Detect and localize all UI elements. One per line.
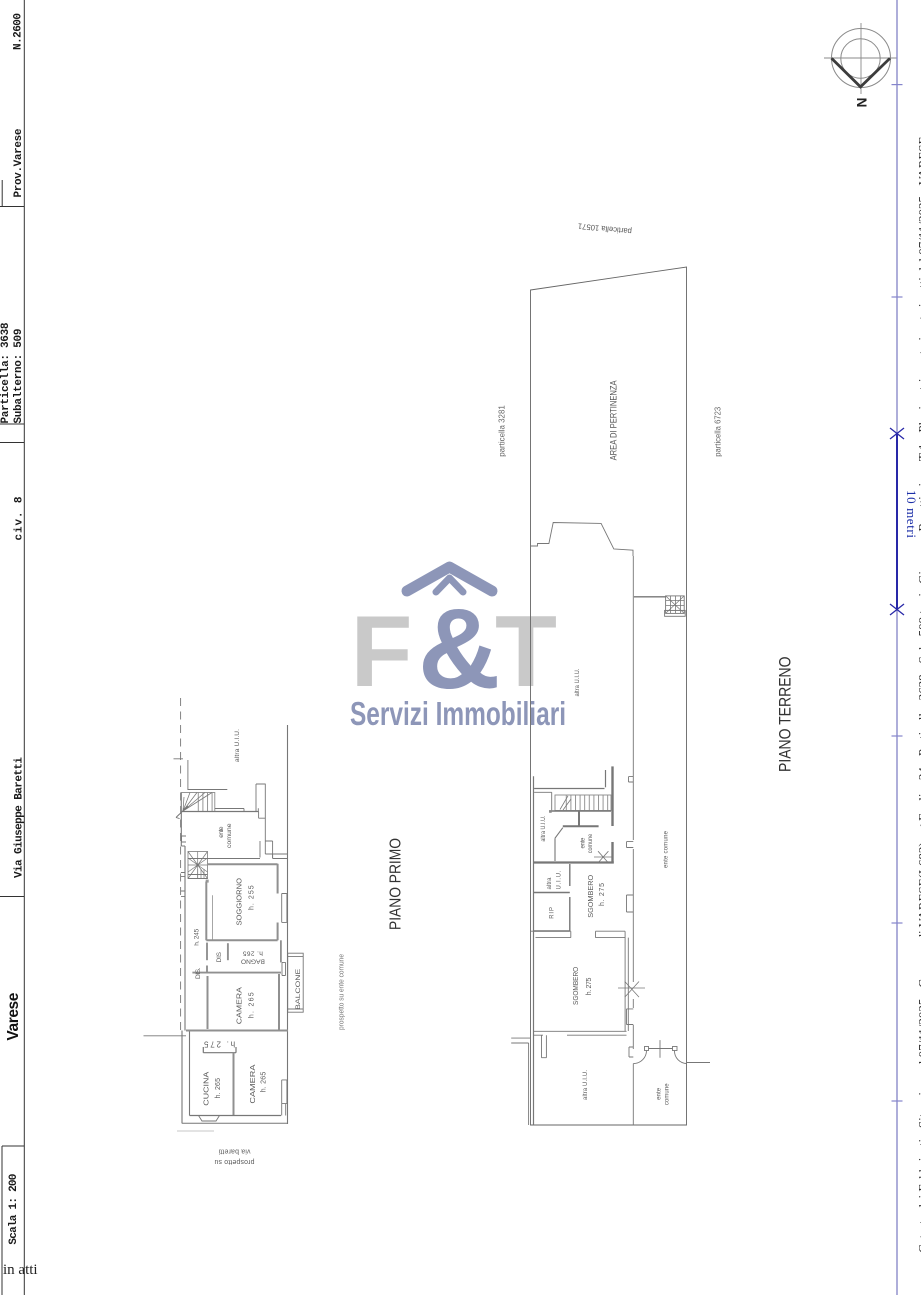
svg-text:h. 275: h. 275: [599, 883, 606, 906]
svg-text:comune: comune: [588, 833, 594, 853]
svg-text:particella 10571: particella 10571: [577, 221, 632, 236]
svg-text:h. 275: h. 275: [586, 978, 593, 996]
svg-text:ente: ente: [218, 826, 225, 838]
svg-text:Servizi Immobiliari: Servizi Immobiliari: [350, 695, 566, 732]
svg-text:ente: ente: [656, 1087, 662, 1100]
svg-text:CAMERA: CAMERA: [250, 1064, 257, 1103]
svg-text:h. 265: h. 265: [215, 1078, 222, 1099]
svg-text:PIANO PRIMO: PIANO PRIMO: [388, 838, 405, 930]
svg-text:DIS: DIS: [216, 951, 223, 962]
svg-text:Particella: 3638: Particella: 3638: [0, 322, 12, 423]
svg-text:T: T: [495, 594, 557, 708]
svg-text:&: &: [418, 586, 500, 713]
svg-text:SGOMBERO: SGOMBERO: [573, 966, 580, 1005]
svg-text:altra U.I.U.: altra U.I.U.: [583, 1070, 589, 1100]
svg-text:F: F: [351, 594, 413, 708]
svg-text:Subalterno: 509: Subalterno: 509: [13, 329, 25, 424]
svg-text:h. 255: h. 255: [249, 885, 256, 910]
svg-text:h. 245: h. 245: [194, 928, 201, 945]
svg-text:Comune: Comune: [0, 166, 1, 202]
svg-text:via baretti: via baretti: [218, 1148, 250, 1155]
svg-text:altra: altra: [547, 877, 553, 890]
svg-text:prospetto su ente comune: prospetto su ente comune: [339, 954, 346, 1030]
svg-text:altra U.I.U.: altra U.I.U.: [234, 729, 241, 762]
svg-text:Scala 1: 200: Scala 1: 200: [8, 1174, 20, 1245]
svg-text:Catasto dei Fabbricati - Situa: Catasto dei Fabbricati - Situazione al 0…: [916, 136, 921, 1253]
svg-text:AREA DI PERTINENZA: AREA DI PERTINENZA: [609, 380, 619, 460]
svg-text:CAMERA: CAMERA: [237, 987, 244, 1025]
svg-text:PIANO TERRENO: PIANO TERRENO: [775, 657, 794, 773]
svg-text:comune: comune: [226, 823, 233, 848]
svg-text:ente: ente: [581, 837, 587, 848]
svg-text:U.I.U.: U.I.U.: [557, 870, 563, 889]
svg-text:prospetto su: prospetto su: [214, 1158, 254, 1165]
svg-text:SOGGIORNO: SOGGIORNO: [235, 878, 244, 926]
svg-text:N.2600: N.2600: [13, 13, 25, 50]
svg-text:particella 6723: particella 6723: [714, 406, 723, 457]
svg-text:SGOMBERO: SGOMBERO: [588, 874, 595, 918]
svg-text:altra U.I.U.: altra U.I.U.: [574, 668, 581, 696]
svg-text:N: N: [855, 98, 870, 108]
svg-text:in atti: in atti: [3, 1262, 38, 1278]
svg-text:altra U.I.U.: altra U.I.U.: [541, 815, 547, 841]
svg-text:h. 265: h. 265: [261, 1072, 268, 1093]
svg-text:comune: comune: [665, 1083, 671, 1105]
svg-text:Varese: Varese: [5, 992, 22, 1040]
svg-text:ente comune: ente comune: [663, 830, 669, 868]
svg-text:DIS.: DIS.: [195, 967, 202, 979]
svg-text:civ. 8: civ. 8: [14, 496, 26, 540]
svg-text:h. 265: h. 265: [248, 992, 255, 1018]
svg-text:h. 265: h. 265: [243, 950, 263, 957]
svg-text:BALCONE: BALCONE: [295, 968, 302, 1010]
svg-text:particella 3281: particella 3281: [498, 405, 507, 457]
svg-text:Prov.Varese: Prov.Varese: [13, 128, 25, 197]
svg-text:Via Giuseppe Baretti: Via Giuseppe Baretti: [14, 757, 26, 878]
svg-text:BAGNO: BAGNO: [241, 958, 265, 965]
svg-text:h. 275: h. 275: [204, 1040, 236, 1049]
svg-text:RIP: RIP: [550, 907, 556, 919]
svg-text:CUCINA: CUCINA: [204, 1071, 211, 1105]
